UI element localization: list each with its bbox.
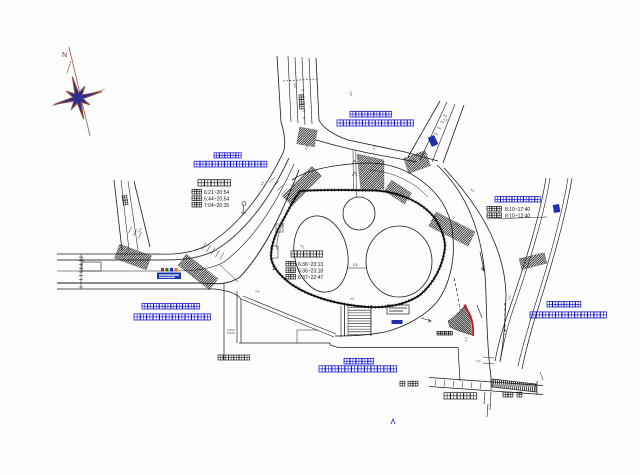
svg-text:6:36~23:13: 6:36~23:13: [298, 262, 323, 268]
svg-text:8:10~12:40: 8:10~12:40: [505, 214, 530, 220]
svg-text:6:44~20:54: 6:44~20:54: [204, 197, 229, 203]
svg-text:N: N: [62, 52, 67, 59]
svg-text:4.5: 4.5: [350, 297, 355, 301]
svg-text:1: 1: [272, 266, 275, 272]
svg-text:4.5: 4.5: [81, 257, 85, 262]
svg-text:6:37~22:47: 6:37~22:47: [298, 275, 323, 281]
svg-text:4.5: 4.5: [476, 359, 481, 363]
svg-text:6:21~20:54: 6:21~20:54: [204, 190, 229, 196]
svg-text:4.5: 4.5: [349, 91, 353, 96]
svg-text:8:10~17:40: 8:10~17:40: [505, 207, 530, 213]
svg-text:4.5: 4.5: [293, 83, 297, 88]
svg-text:5.5: 5.5: [353, 263, 358, 267]
svg-text:6:36~23:18: 6:36~23:18: [298, 269, 323, 275]
svg-text:7:04~20:35: 7:04~20:35: [204, 203, 229, 209]
svg-text:4.5: 4.5: [372, 145, 376, 150]
